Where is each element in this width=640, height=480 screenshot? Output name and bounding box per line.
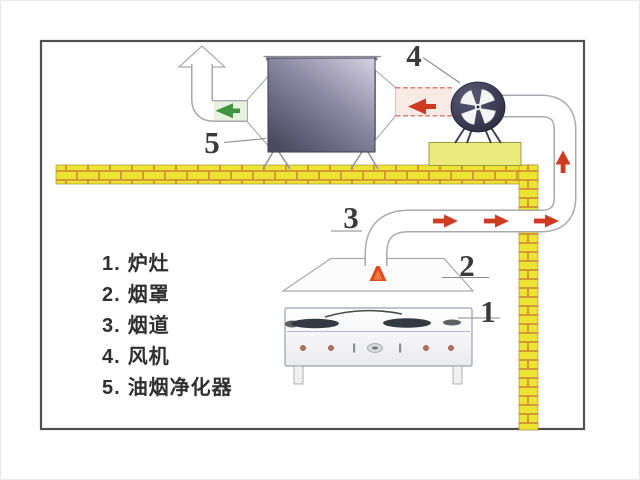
wall-bricks: [519, 165, 538, 430]
legend-label: 油烟净化器: [128, 373, 233, 404]
oil-fume-purifier: [248, 57, 396, 170]
legend-num: 3.: [102, 311, 121, 342]
stove-leg: [294, 366, 303, 384]
callout-1-stove: 1: [480, 294, 496, 329]
stove-leg: [453, 366, 462, 384]
fan-inlet-duct: [396, 88, 453, 116]
burner: [285, 321, 299, 328]
legend-label: 烟道: [128, 311, 170, 342]
legend-label: 炉灶: [128, 249, 170, 280]
stove-knob: [423, 345, 428, 350]
pointer-line-fan: [423, 58, 460, 84]
diagram-drawing: 4 5 3 2 1: [0, 0, 640, 480]
legend-item-purifier: 5. 油烟净化器: [102, 373, 233, 404]
legend-item-fan: 4. 风机: [102, 342, 233, 373]
stove-nameplate-mark: [372, 347, 378, 350]
legend-num: 5.: [102, 373, 121, 404]
cooking-stove: [285, 308, 472, 384]
legend-num: 4.: [102, 342, 121, 373]
ceiling-slab-bricks: [56, 165, 538, 184]
legend-num: 1.: [102, 249, 121, 280]
stove-switch: [399, 344, 401, 353]
stove-knob: [328, 345, 333, 350]
fan-base-block: [429, 143, 521, 166]
legend-item-stove: 1. 炉灶: [102, 249, 233, 280]
burner: [383, 318, 431, 328]
callout-2-hood: 2: [459, 248, 475, 283]
legend-num: 2.: [102, 280, 121, 311]
pointer-line-purifier: [224, 139, 266, 143]
stove-body: [285, 308, 472, 366]
burner: [443, 320, 461, 326]
callout-3-flue: 3: [343, 200, 359, 235]
kitchen-exhaust-diagram: 4 5 3 2 1 1. 炉灶 2. 烟罩 3. 烟道 4. 风机 5. 油烟净…: [0, 0, 640, 480]
legend-item-flue: 3. 烟道: [102, 311, 233, 342]
purifier-right-cone: [376, 71, 396, 141]
stove-knob: [448, 345, 453, 350]
callout-4-fan: 4: [406, 38, 422, 73]
legend: 1. 炉灶 2. 烟罩 3. 烟道 4. 风机 5. 油烟净化器: [102, 249, 233, 404]
purifier-body: [268, 58, 375, 152]
up-arrow-outline-icon: [179, 46, 225, 67]
stove-switch: [353, 344, 355, 353]
legend-item-hood: 2. 烟罩: [102, 280, 233, 311]
purifier-left-cone: [248, 77, 269, 146]
exhaust-stack: [179, 46, 248, 121]
stove-knob: [300, 345, 305, 350]
callout-5-purifier: 5: [204, 125, 220, 160]
legend-label: 烟罩: [128, 280, 170, 311]
legend-label: 风机: [128, 342, 170, 373]
